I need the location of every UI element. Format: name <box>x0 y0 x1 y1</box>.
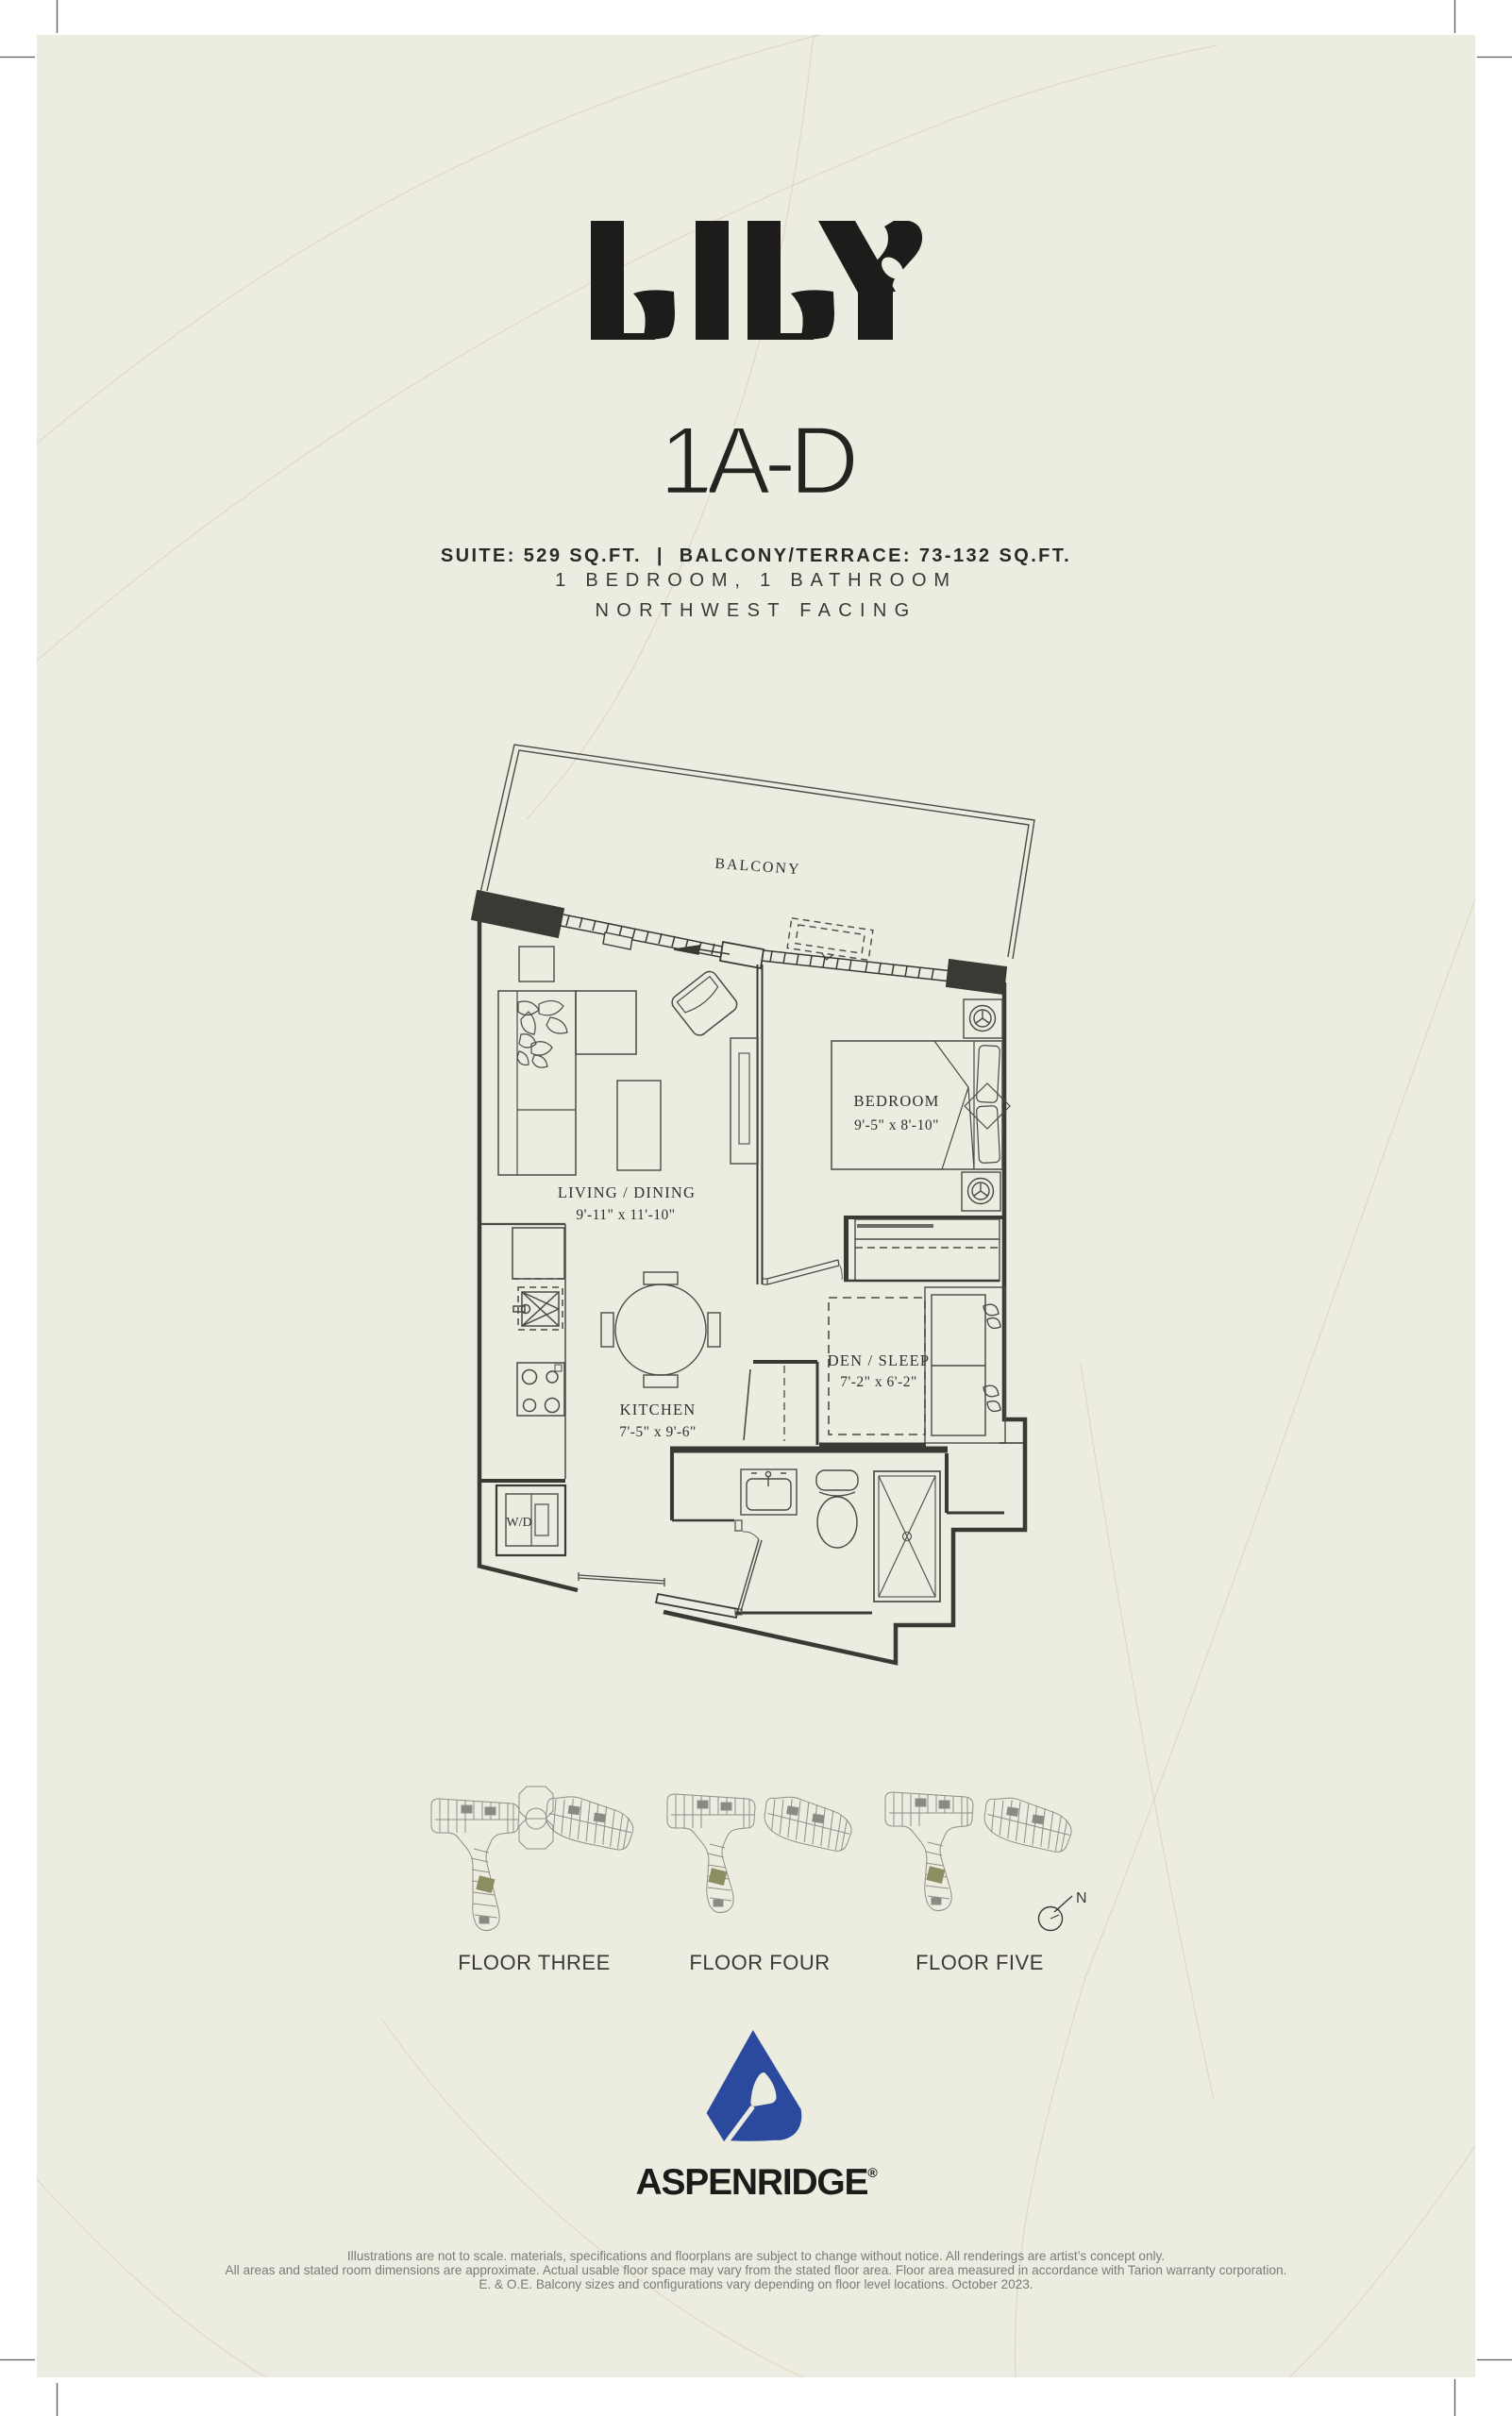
svg-text:LIVING / DINING: LIVING / DINING <box>558 1183 696 1201</box>
svg-text:9'-11" x 11'-10": 9'-11" x 11'-10" <box>576 1207 675 1223</box>
svg-text:KITCHEN: KITCHEN <box>620 1401 697 1418</box>
svg-text:BEDROOM: BEDROOM <box>854 1092 940 1110</box>
svg-text:7'-5" x 9'-6": 7'-5" x 9'-6" <box>619 1424 697 1440</box>
svg-text:7'-2" x 6'-2": 7'-2" x 6'-2" <box>840 1374 917 1390</box>
svg-text:W/D: W/D <box>506 1516 531 1530</box>
svg-text:DEN / SLEEP: DEN / SLEEP <box>828 1351 931 1369</box>
svg-text:9'-5" x 8'-10": 9'-5" x 8'-10" <box>854 1117 939 1133</box>
svg-text:BALCONY: BALCONY <box>714 856 801 878</box>
